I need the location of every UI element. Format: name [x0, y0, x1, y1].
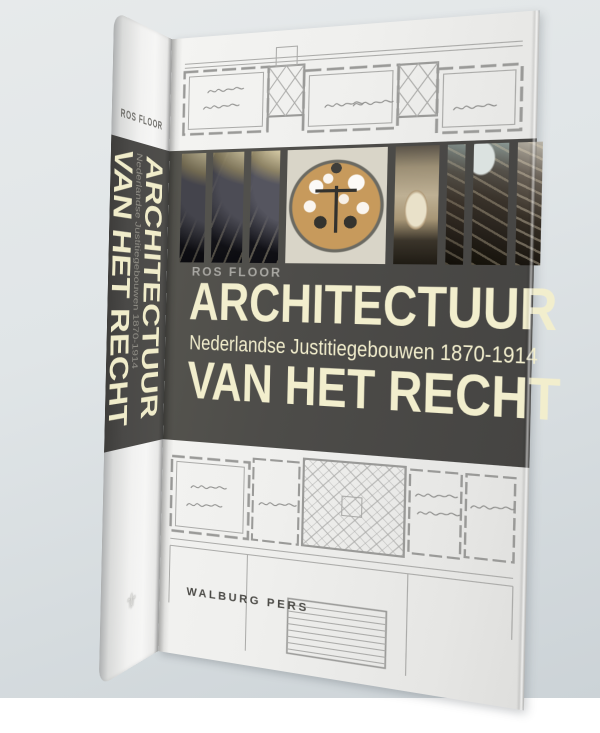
floor-plan-drawing-top [170, 15, 540, 149]
studio-background: ROS FLOOR ARCHITECTUUR Nederlandse Justi… [0, 0, 600, 698]
courtroom-gallery-photo-strip-1 [179, 153, 206, 263]
book-mockup: ROS FLOOR ARCHITECTUUR Nederlandse Justi… [63, 37, 517, 663]
staircase-photo-strip-3 [515, 142, 543, 266]
publisher-logo-icon: ⚜ [100, 575, 160, 630]
floor-plan-drawing-bottom [158, 441, 529, 699]
stained-glass-scales-of-justice-photo [285, 147, 388, 264]
spine-dark-band: ARCHITECTUUR Nederlandse Justitiegebouwe… [104, 135, 169, 453]
spine-title-block: ARCHITECTUUR Nederlandse Justitiegebouwe… [105, 146, 164, 477]
staircase-photo-strip-1 [445, 144, 466, 265]
courtroom-gallery-photo-strip-2 [211, 152, 245, 263]
courtroom-gallery-photo-strip-3 [249, 150, 280, 263]
cover-title-line2: VAN HET RECHT [187, 354, 600, 438]
corridor-arch-photo [393, 145, 440, 264]
staircase-photo-strip-2 [471, 143, 509, 265]
cover-dark-band: ROS FLOOR ARCHITECTUUR Nederlandse Justi… [163, 138, 537, 468]
spine-author-name: ROS FLOOR [114, 104, 168, 134]
book-front-cover: ROS FLOOR ARCHITECTUUR Nederlandse Justi… [158, 10, 540, 710]
photo-strip-row [179, 142, 532, 265]
